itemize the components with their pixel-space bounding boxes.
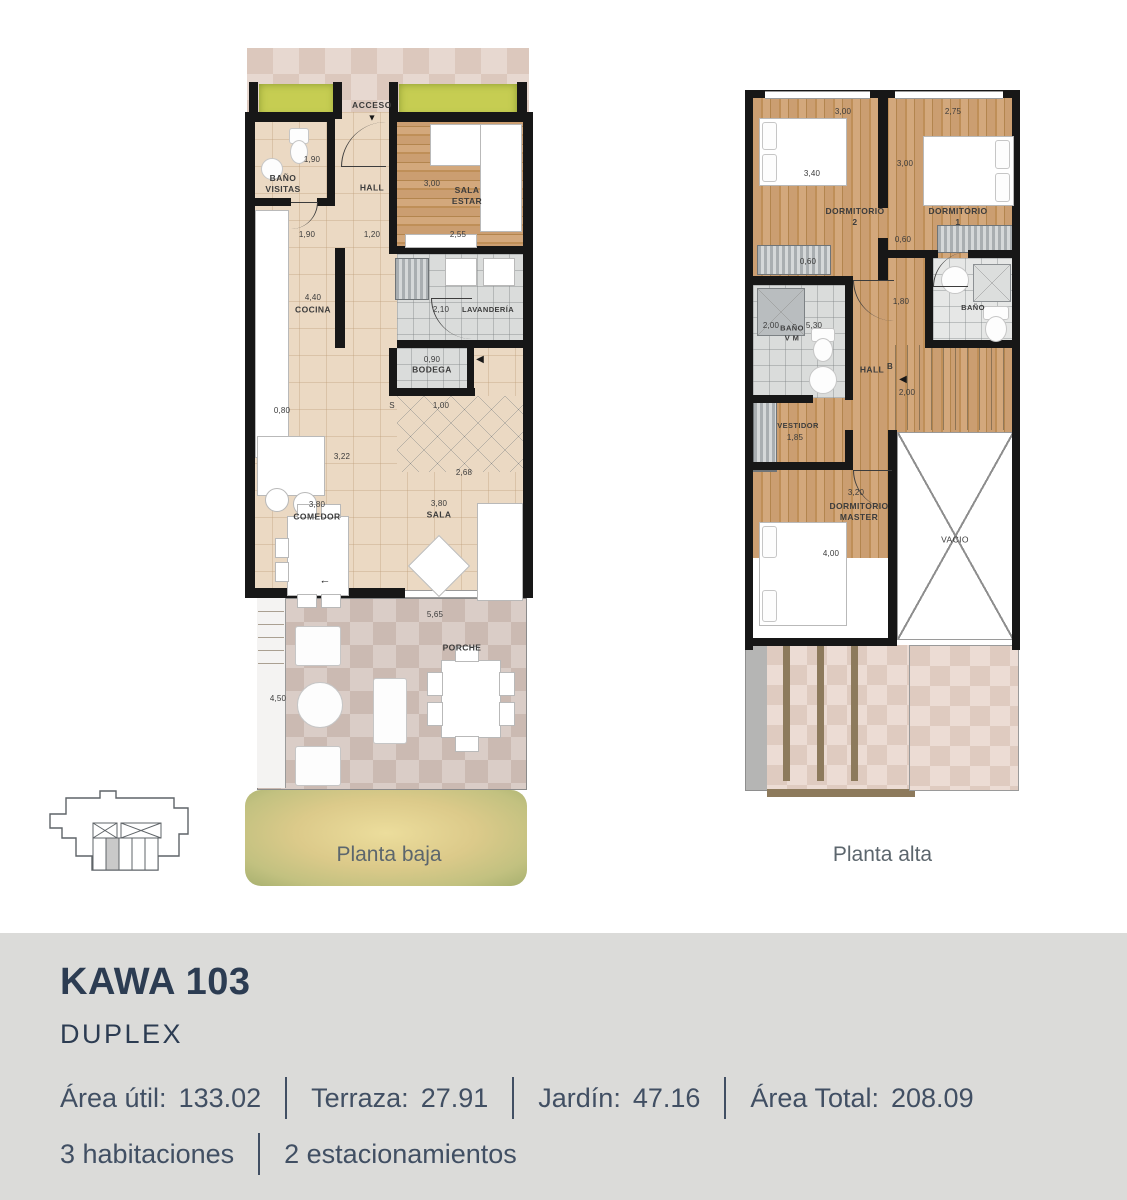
porch-chair xyxy=(427,672,443,696)
kitchen-counter xyxy=(255,210,289,458)
porch-chair xyxy=(499,702,515,726)
wall xyxy=(389,112,397,254)
dim-porche: 5,65 xyxy=(427,611,443,619)
vestidor-closet xyxy=(753,470,777,472)
info-footer: KAWA 103 DUPLEX Área útil: 133.02 Terraz… xyxy=(0,933,1127,1200)
wall xyxy=(745,90,753,650)
access-label: ACCESO xyxy=(352,101,392,110)
dim-lavanderia: 2,10 xyxy=(433,306,449,314)
stairs-upper-hatch xyxy=(395,258,429,300)
dim-closet-2: 0,60 xyxy=(800,258,816,266)
garden xyxy=(245,790,527,886)
dim-bano-visitas: 1,90 xyxy=(304,156,320,164)
wall xyxy=(389,388,475,396)
dim-master-depth: 4,00 xyxy=(823,550,839,558)
dim-hall-mid: 1,20 xyxy=(364,231,380,239)
dim-master-width: 3,20 xyxy=(848,489,864,497)
wall xyxy=(878,90,888,208)
room-label-cocina: COCINA xyxy=(295,304,331,315)
door-arrow-icon: ← xyxy=(320,576,331,587)
stat-terraza: Terraza: 27.91 xyxy=(311,1083,488,1114)
divider xyxy=(258,1133,260,1175)
porch-round-table xyxy=(297,682,343,728)
stat-jardin: Jardín: 47.16 xyxy=(538,1083,700,1114)
closet-dormitorio-2 xyxy=(757,245,831,275)
sink xyxy=(809,366,837,394)
feature-row: 3 habitaciones 2 estacionamientos xyxy=(60,1133,517,1175)
washer xyxy=(445,258,477,286)
dim-living-width: 3,22 xyxy=(334,453,350,461)
pillow xyxy=(762,590,777,622)
stat-value: 133.02 xyxy=(179,1083,262,1114)
room-label-porche: PORCHE xyxy=(443,642,482,653)
ground-floor-caption: Planta baja xyxy=(245,843,533,867)
closet-dormitorio-1 xyxy=(937,225,1014,253)
bedroom-window xyxy=(765,91,870,99)
dim-cocina: 4,40 xyxy=(305,294,321,302)
dim-living-diag: 2,68 xyxy=(456,469,472,477)
terrace-gray-strip xyxy=(745,645,769,791)
wall xyxy=(397,112,533,122)
wall xyxy=(335,248,345,348)
upper-terrace-floor xyxy=(909,645,1019,791)
room-label-sala-estar: SALA ESTAR xyxy=(452,185,482,207)
stat-label: Área Total: xyxy=(750,1083,879,1114)
pergola-slat xyxy=(851,645,858,781)
stat-area-total: Área Total: 208.09 xyxy=(750,1083,973,1114)
dim-sala: 3,80 xyxy=(431,500,447,508)
room-label-dormitorio-1: DORMITORIO 1 xyxy=(928,206,987,228)
dim-side-patio: 4,50 xyxy=(270,695,286,703)
area-stats: Área útil: 133.02 Terraza: 27.91 Jardín:… xyxy=(60,1077,974,1119)
wall xyxy=(523,112,533,598)
dim-vestidor: 1,85 xyxy=(787,434,803,442)
stat-value: 208.09 xyxy=(891,1083,974,1114)
side-patio-steps xyxy=(258,608,284,664)
stat-value: 27.91 xyxy=(421,1083,489,1114)
wall xyxy=(925,252,933,348)
dim-closet-1: 0,60 xyxy=(895,236,911,244)
wall xyxy=(753,276,845,285)
stair-arrow-icon: ◀ xyxy=(899,375,907,385)
stat-label: Terraza: xyxy=(311,1083,409,1114)
locator-units xyxy=(93,838,158,870)
locator-cross-block xyxy=(93,823,161,838)
pillow xyxy=(762,122,777,150)
building-locator xyxy=(36,786,206,884)
porch-chair xyxy=(427,702,443,726)
room-label-bano-vm: BAÑO V M xyxy=(780,323,804,343)
wall xyxy=(878,238,888,280)
hall-marker-b: B xyxy=(887,363,893,371)
unit-subtitle: DUPLEX xyxy=(60,1019,183,1050)
wall xyxy=(327,112,335,206)
wall xyxy=(245,112,255,598)
pillow xyxy=(762,526,777,558)
dim-bodega: 0,90 xyxy=(424,356,440,364)
upper-floor-plan: 3,00 2,75 3,40 3,00 DORMITORIO 2 DORMITO… xyxy=(745,90,1020,790)
tv-cabinet xyxy=(405,234,477,248)
wall xyxy=(245,112,335,122)
ground-floor-plan: ACCESO ▼ 1,90 BAÑO VISITAS HALL 3,00 SAL… xyxy=(245,48,533,888)
room-label-bano-visitas: BAÑO VISITAS xyxy=(265,173,300,195)
dim-dorm2-depth: 3,40 xyxy=(804,170,820,178)
dim-bano-vm-a: 2,00 xyxy=(763,322,779,330)
dim-dorm2-width: 3,00 xyxy=(835,108,851,116)
wall xyxy=(933,340,1012,348)
stat-label: Jardín: xyxy=(538,1083,621,1114)
room-label-lavanderia: LAVANDERÍA xyxy=(462,305,514,315)
pillow xyxy=(995,140,1010,169)
pergola-slat xyxy=(817,645,824,781)
dim-sala-estar-bottom: 2,55 xyxy=(450,231,466,239)
wall xyxy=(245,198,291,206)
room-label-comedor: COMEDOR xyxy=(293,511,340,522)
wall xyxy=(845,276,853,400)
sofa-sectional xyxy=(480,124,522,232)
locator-unit-highlight xyxy=(106,838,119,870)
dim-dorm1-width: 2,75 xyxy=(945,108,961,116)
pergola-slat xyxy=(783,645,790,781)
divider xyxy=(512,1077,514,1119)
feature-parking: 2 estacionamientos xyxy=(284,1139,517,1170)
dim-kitchen-island: 0,80 xyxy=(274,407,290,415)
toilet-bowl xyxy=(813,338,833,362)
room-label-bodega: BODEGA xyxy=(412,364,452,375)
room-label-vacio: VACIO xyxy=(941,534,969,545)
dim-dorm1-depth: 3,00 xyxy=(897,160,913,168)
kitchen-island xyxy=(257,436,325,496)
toilet-bowl xyxy=(985,316,1007,342)
dining-table xyxy=(287,516,349,596)
room-label-dormitorio-2: DORMITORIO 2 xyxy=(825,206,884,228)
wall xyxy=(317,198,335,206)
room-label-hall-upper: HALL xyxy=(860,364,884,375)
bedroom-window xyxy=(895,91,1003,99)
porch-dining-table xyxy=(441,660,501,738)
feature-bedrooms: 3 habitaciones xyxy=(60,1139,234,1170)
dim-pass: 1,80 xyxy=(893,298,909,306)
divider xyxy=(724,1077,726,1119)
room-label-sala: SALA xyxy=(427,509,452,520)
dim-hall-left: 1,90 xyxy=(299,231,315,239)
dim-bano-vm-b: 5,30 xyxy=(806,322,822,330)
porch-chair xyxy=(455,736,479,752)
wall xyxy=(745,638,897,646)
divider xyxy=(285,1077,287,1119)
shower xyxy=(973,264,1011,302)
dim-stairs: 1,00 xyxy=(433,402,449,410)
stat-area-util: Área útil: 133.02 xyxy=(60,1083,261,1114)
stairs-ground xyxy=(397,396,525,472)
island-stool xyxy=(265,488,289,512)
dim-stairs-upper: 2,00 xyxy=(899,389,915,397)
dining-chair xyxy=(321,594,341,608)
wall xyxy=(753,462,845,470)
porch-lounge xyxy=(373,678,407,744)
bodega-arrow-icon: ◀ xyxy=(476,355,484,365)
pillow xyxy=(995,173,1010,202)
wall xyxy=(888,430,897,638)
unit-title: KAWA 103 xyxy=(60,961,251,1004)
sofa xyxy=(477,503,523,601)
access-arrow-icon: ▼ xyxy=(368,114,377,123)
dryer xyxy=(483,258,515,286)
dim-comedor: 3,80 xyxy=(309,501,325,509)
wall xyxy=(845,430,853,470)
pillow xyxy=(762,154,777,182)
stat-label: Área útil: xyxy=(60,1083,167,1114)
porch-armchair xyxy=(295,746,341,786)
wall xyxy=(397,340,533,348)
upper-floor-caption: Planta alta xyxy=(745,843,1020,867)
wall xyxy=(968,250,1012,258)
dining-chair xyxy=(275,562,289,582)
dim-sala-estar: 3,00 xyxy=(424,180,440,188)
dining-chair xyxy=(275,538,289,558)
stair-marker: S xyxy=(389,402,395,410)
room-label-hall: HALL xyxy=(360,182,384,193)
wall xyxy=(753,395,813,403)
room-label-vestidor: VESTIDOR xyxy=(777,421,819,431)
vestidor-closet xyxy=(753,402,777,468)
porch-chair xyxy=(499,672,515,696)
room-label-master: DORMITORIO MASTER xyxy=(829,501,888,523)
porch-armchair xyxy=(295,626,341,666)
dining-chair xyxy=(297,594,317,608)
stat-value: 47.16 xyxy=(633,1083,701,1114)
room-label-bano: BAÑO xyxy=(961,303,985,313)
